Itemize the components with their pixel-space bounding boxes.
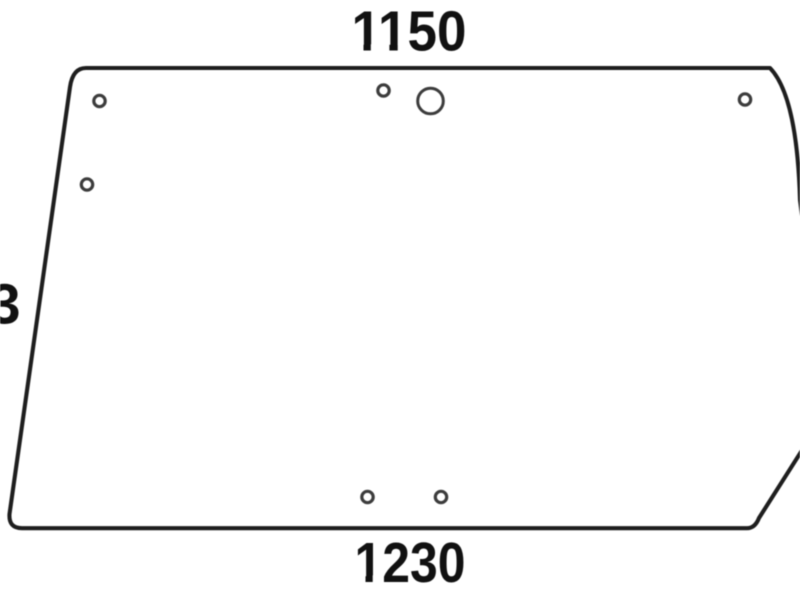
svg-text:1150: 1150 — [352, 0, 467, 63]
svg-text:1230: 1230 — [355, 531, 466, 594]
svg-text:3: 3 — [0, 273, 21, 336]
